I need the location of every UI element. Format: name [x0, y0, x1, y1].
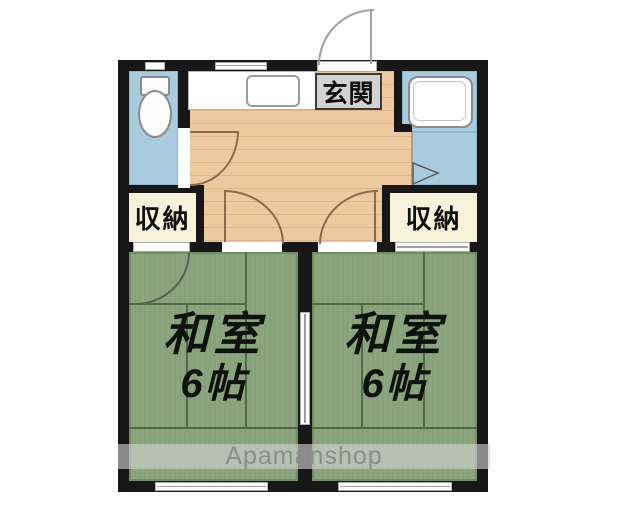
watermark-band: Apamanshop [118, 444, 490, 469]
toilet-bowl [138, 90, 172, 138]
wall-outer-right [477, 60, 488, 492]
window-icon [215, 62, 267, 70]
wall-outer-left [118, 60, 129, 492]
entrance-label: 玄関 [322, 74, 374, 110]
storage-right-label: 収納 [390, 193, 477, 242]
toilet-doorway [178, 128, 190, 188]
storage-left-label: 収納 [129, 193, 196, 242]
tatami-left-label: 和室 6帖 [129, 308, 298, 408]
sliding-door-track [304, 314, 306, 423]
tatami-mat-line [129, 427, 298, 429]
tatami-mat-line [312, 303, 424, 305]
entrance-label-box: 玄関 [315, 73, 382, 110]
tatami-right-label: 和室 6帖 [312, 308, 477, 408]
window-center-line [340, 486, 450, 487]
wall-wash-storage-divider [382, 185, 488, 193]
folding-door-icon [412, 162, 440, 186]
window-center-line [157, 486, 266, 487]
tatami-mat-line [312, 427, 477, 429]
wall-toilet-storage-divider [118, 185, 204, 193]
wall-bath-left [394, 60, 402, 132]
room-name: 和室 [345, 308, 445, 360]
bathtub-icon [408, 76, 473, 128]
room-size: 6帖 [180, 360, 246, 408]
room-name: 和室 [164, 308, 264, 360]
room-size: 6帖 [361, 360, 427, 408]
window-center-line [216, 65, 266, 66]
window-icon [145, 62, 165, 70]
watermark-text: Apamanshop [225, 442, 382, 471]
kitchen-sink-icon [246, 75, 300, 107]
sliding-door-track [397, 246, 468, 248]
bathtub-inner-rim [413, 81, 466, 121]
storage-left-door-sill [133, 242, 190, 252]
floorplan-canvas: 玄関 収納 収納 和室 6帖 和室 6帖 Apamanshop [0, 0, 640, 512]
wall-outer-top [118, 60, 488, 71]
hinged-door-icon [318, 9, 374, 65]
